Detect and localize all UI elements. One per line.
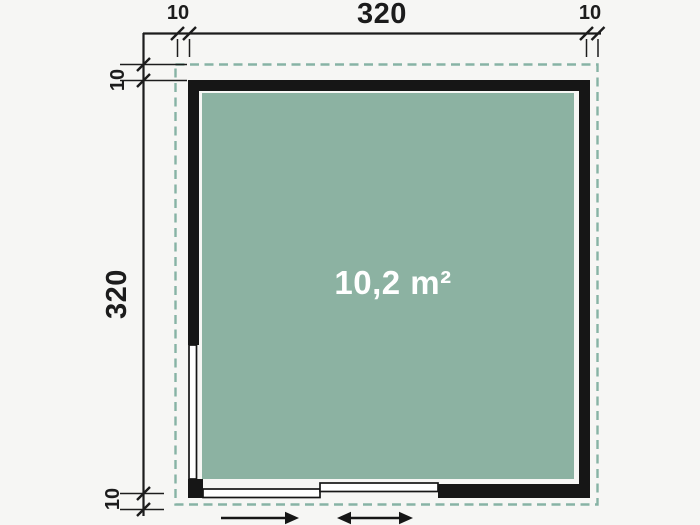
wall-bottom-right xyxy=(438,484,590,498)
dim-top-width-label: 320 xyxy=(322,1,442,27)
door-slide-arrows xyxy=(221,512,413,524)
arrowhead-right-icon xyxy=(399,512,413,524)
wall-top xyxy=(188,80,590,91)
wall-right xyxy=(579,80,590,498)
floor-area-label: 10,2 m² xyxy=(288,261,498,305)
dim-side-height-label: 320 xyxy=(77,254,157,334)
dim-overhang-top-left-label: 10 xyxy=(152,3,204,23)
wall-left-upper xyxy=(188,80,199,345)
window-left xyxy=(189,345,197,479)
floor-plan: 320 10 10 320 10 10 10,2 m² xyxy=(0,0,700,525)
sliding-door xyxy=(203,483,438,498)
dim-overhang-top-right-label: 10 xyxy=(564,3,616,23)
arrowhead-left-icon xyxy=(337,512,351,524)
dim-overhang-side-bottom-label: 10 xyxy=(84,470,142,525)
wall-corner-block-bottom-left xyxy=(188,479,203,498)
sliding-door-moving-panel xyxy=(320,483,438,492)
dim-overhang-side-top-label: 10 xyxy=(89,51,147,109)
arrowhead-right-icon xyxy=(285,512,299,524)
sliding-door-fixed-panel xyxy=(203,489,320,498)
